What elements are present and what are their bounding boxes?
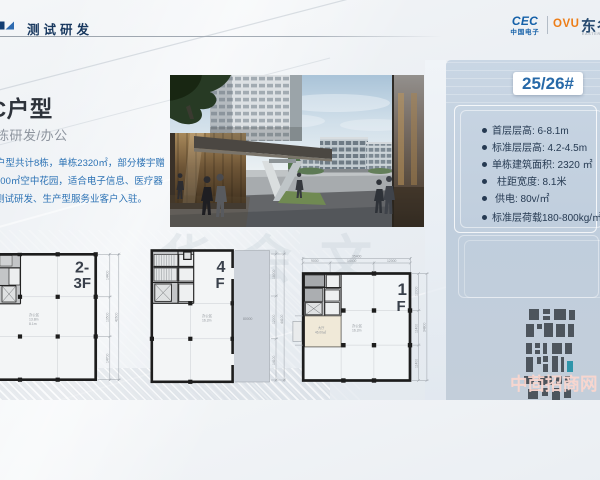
svg-text:12000: 12000 [272, 314, 276, 324]
svg-text:1: 1 [398, 280, 407, 299]
svg-text:11400: 11400 [414, 324, 418, 333]
svg-text:35400: 35400 [352, 254, 362, 258]
svg-text:4: 4 [217, 259, 226, 276]
svg-text:16.2m: 16.2m [202, 319, 212, 323]
svg-text:13.8m: 13.8m [29, 318, 39, 322]
svg-text:14100: 14100 [272, 355, 276, 365]
svg-text:3F: 3F [74, 275, 92, 292]
svg-text:8.1m: 8.1m [29, 322, 37, 326]
svg-text:14400: 14400 [347, 259, 357, 263]
svg-text:44100: 44100 [280, 314, 284, 324]
svg-text:34800: 34800 [423, 322, 427, 332]
svg-text:F: F [397, 298, 406, 315]
svg-text:18000: 18000 [272, 269, 276, 279]
svg-text:2-: 2- [75, 260, 89, 277]
svg-text:F: F [216, 275, 225, 292]
svg-text:14400: 14400 [106, 270, 110, 280]
svg-text:16.2m: 16.2m [352, 329, 362, 333]
svg-text:12000: 12000 [414, 286, 418, 296]
svg-text:80000: 80000 [243, 317, 253, 321]
svg-text:42600: 42600 [115, 312, 119, 322]
svg-text:办公区: 办公区 [29, 312, 40, 317]
svg-text:办公区: 办公区 [352, 323, 363, 328]
svg-text:办公区: 办公区 [202, 313, 213, 318]
svg-text:13500: 13500 [106, 312, 110, 322]
svg-text:46.00㎡: 46.00㎡ [315, 330, 327, 335]
svg-text:9000: 9000 [311, 259, 319, 263]
svg-text:14700: 14700 [106, 353, 110, 363]
svg-text:11400: 11400 [414, 359, 418, 368]
svg-text:大厅: 大厅 [318, 325, 325, 330]
svg-text:12000: 12000 [387, 259, 397, 263]
